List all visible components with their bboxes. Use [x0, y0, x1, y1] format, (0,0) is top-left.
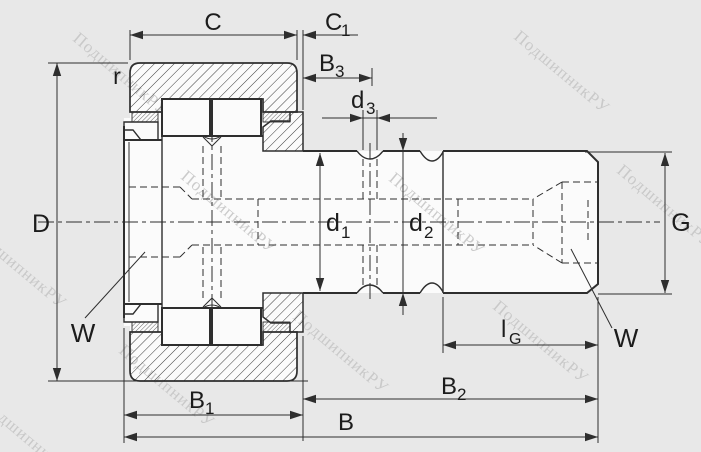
label-d3-sub: 3 [366, 99, 375, 118]
label-D: D [32, 210, 50, 238]
label-C: C [204, 9, 221, 36]
label-C1: C [325, 9, 342, 36]
label-B: B [338, 409, 354, 436]
label-d3: d [351, 87, 364, 114]
label-d2: d [409, 209, 423, 237]
label-d1: d [326, 209, 340, 237]
label-B2-sub: 2 [457, 385, 466, 404]
label-W-right: W [614, 323, 639, 353]
label-W-left: W [71, 318, 96, 348]
label-d2-sub: 2 [424, 223, 433, 242]
label-B1-sub: 1 [205, 399, 214, 418]
label-B2: B [441, 373, 457, 400]
label-lG-sub: G [509, 331, 521, 348]
label-C1-sub: 1 [341, 21, 350, 40]
cam-follower-section-drawing: ПодшипникРУ ПодшипникРУ ПодшипникРУ Подш… [0, 0, 701, 452]
label-r: r [113, 63, 121, 89]
label-G: G [671, 209, 690, 237]
label-B3: B [319, 50, 335, 77]
label-B1: B [189, 387, 205, 414]
label-d1-sub: 1 [341, 223, 350, 242]
label-lG: l [501, 316, 506, 343]
label-B3-sub: 3 [335, 62, 344, 81]
bearing-drawing-page: ПодшипникРУ ПодшипникРУ ПодшипникРУ Подш… [0, 0, 701, 452]
